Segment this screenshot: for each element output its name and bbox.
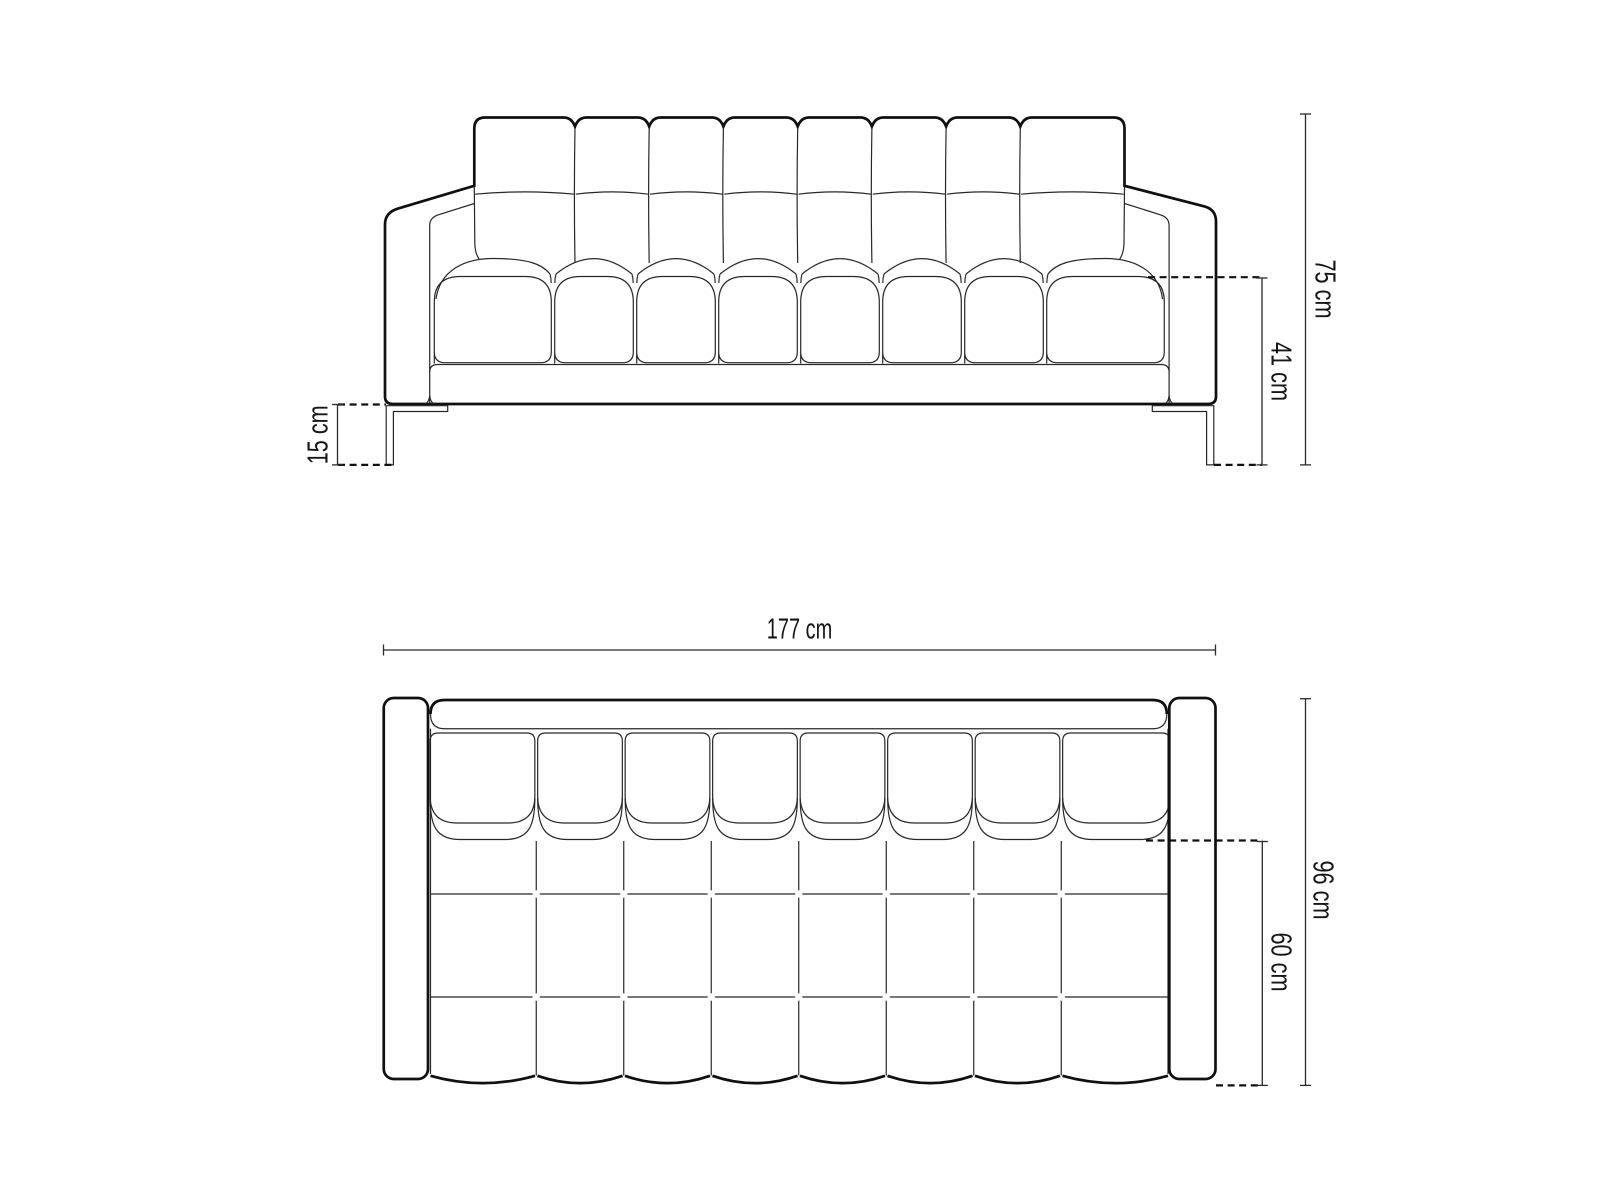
svg-text:15 cm: 15 cm [303,405,335,464]
svg-text:41 cm: 41 cm [1265,342,1297,401]
svg-text:75 cm: 75 cm [1309,260,1341,319]
svg-text:60 cm: 60 cm [1265,933,1297,992]
svg-text:177 cm: 177 cm [767,614,833,646]
svg-text:96 cm: 96 cm [1307,861,1339,920]
